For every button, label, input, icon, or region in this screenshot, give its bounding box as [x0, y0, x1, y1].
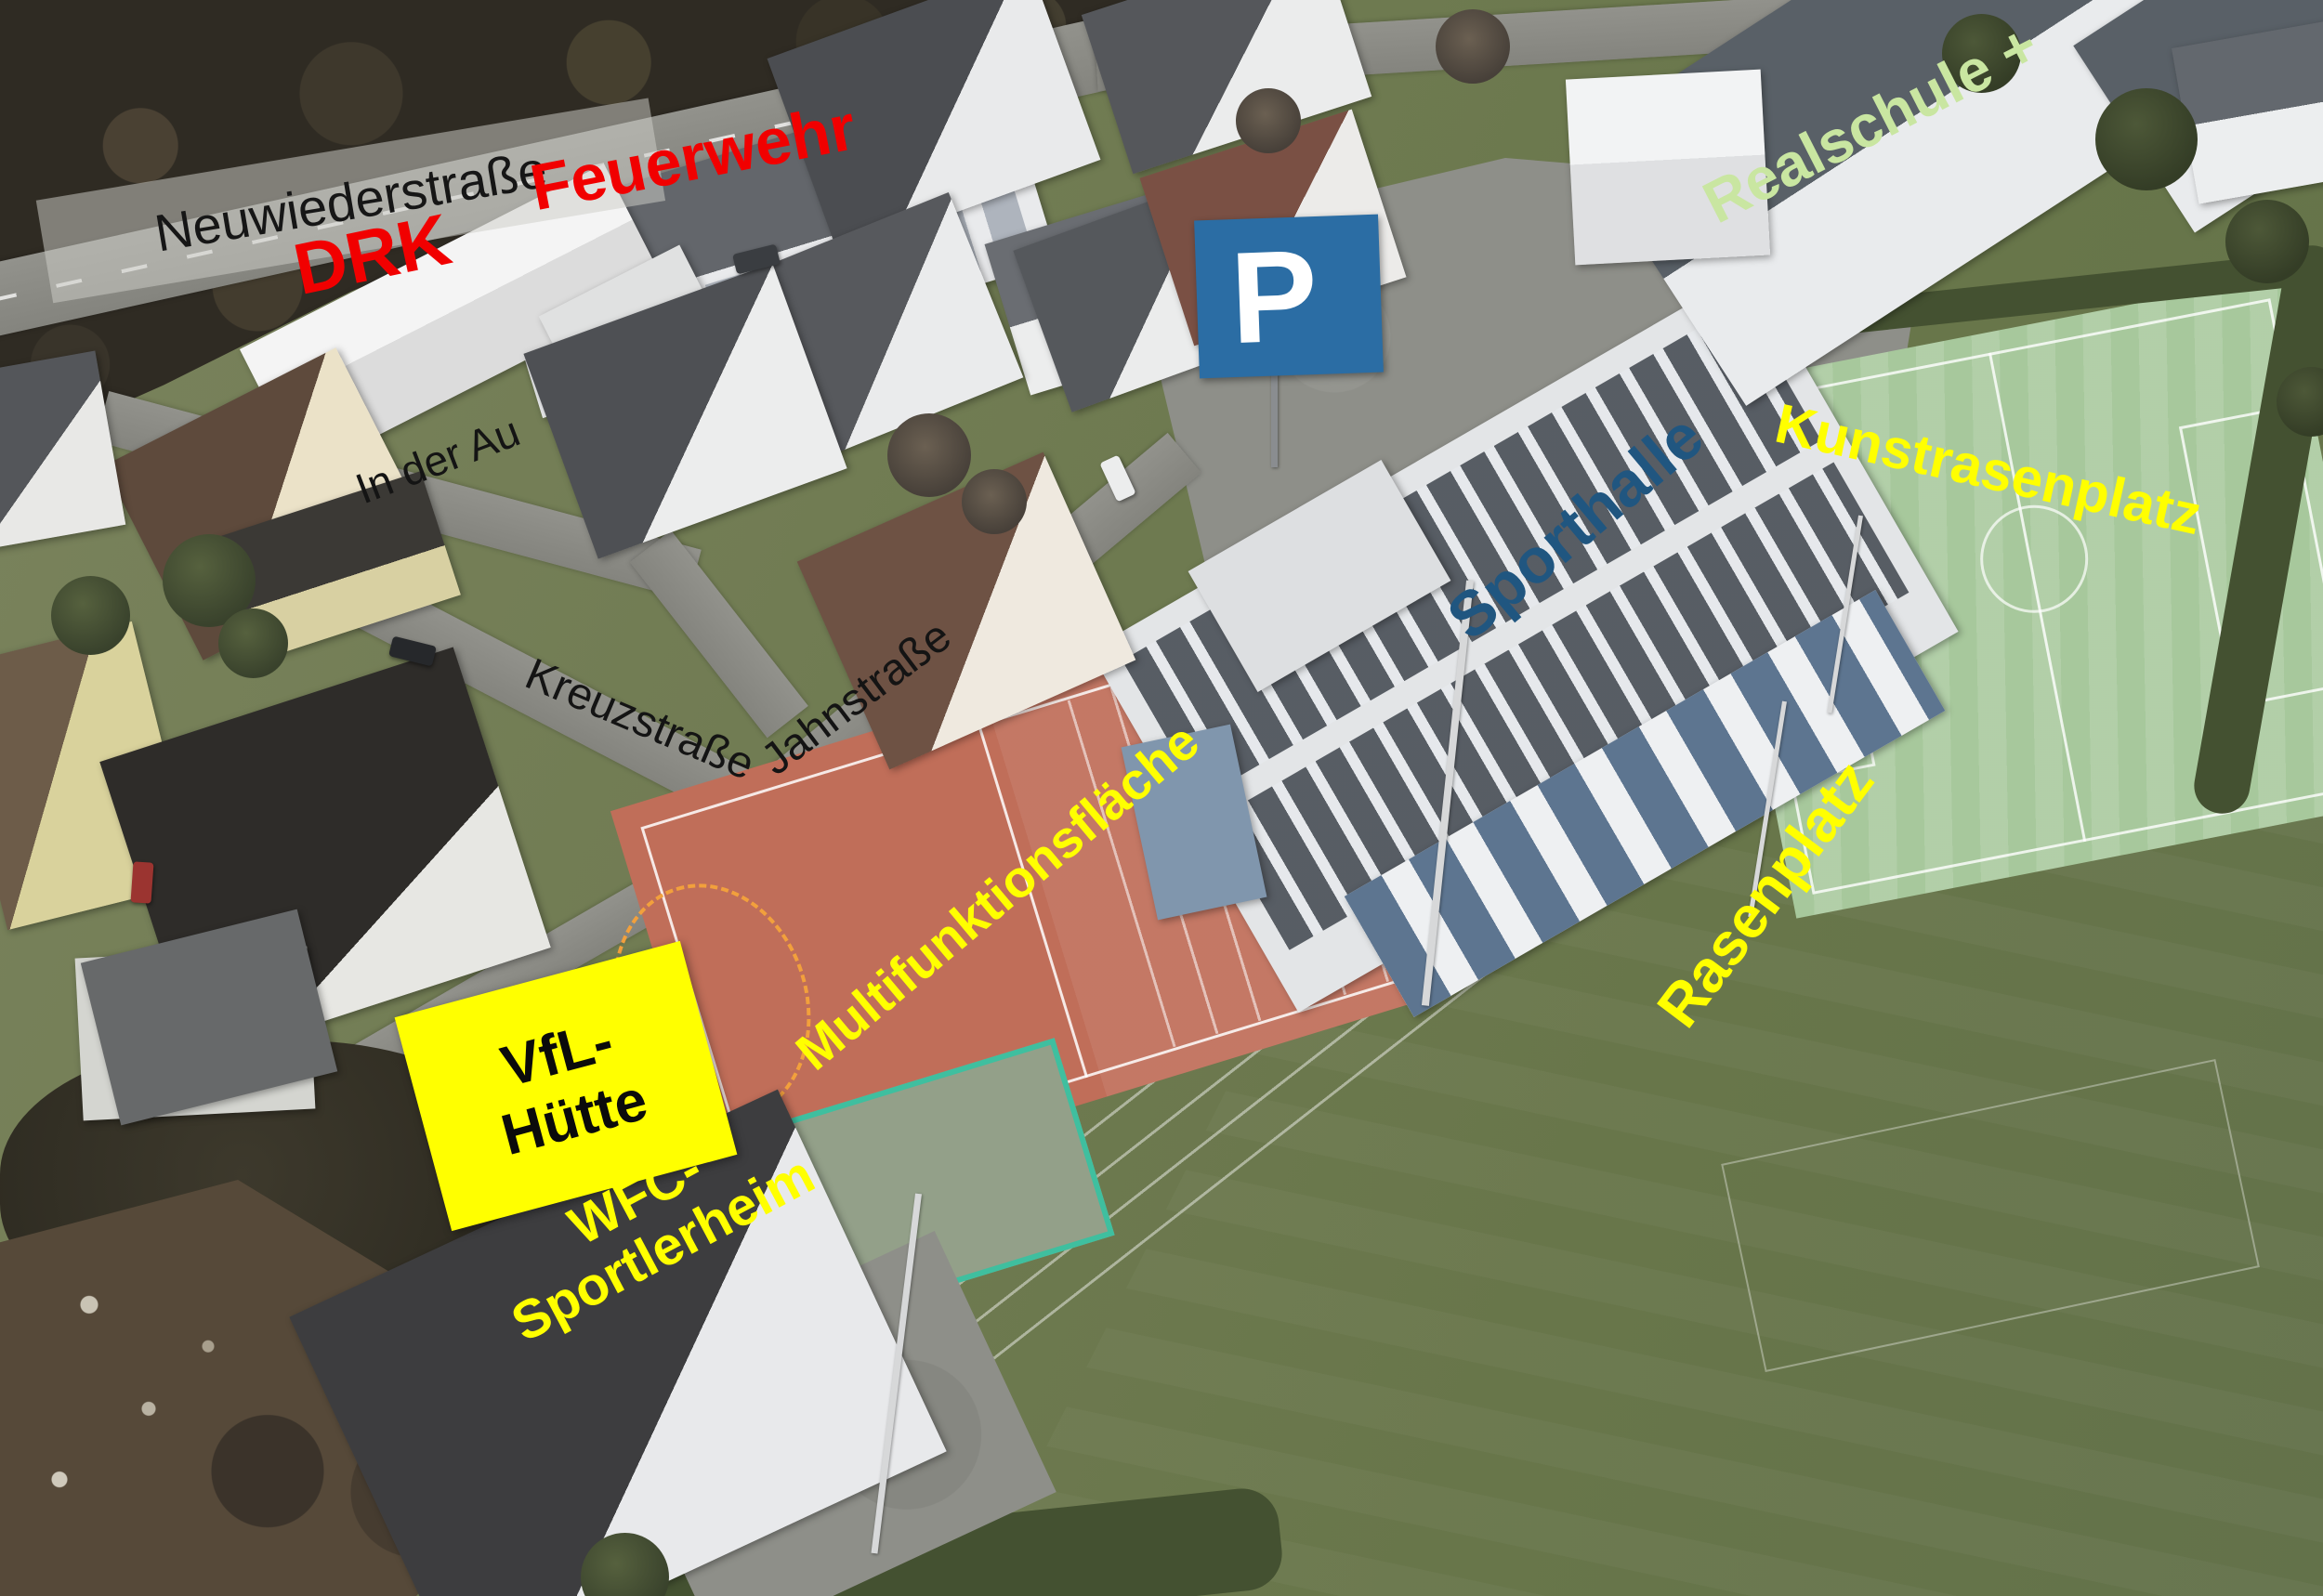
parking-sign-letter: P — [1228, 219, 1350, 373]
car-red — [130, 861, 153, 903]
bare-tree — [1436, 9, 1510, 84]
parking-sign-pole — [1271, 370, 1278, 467]
bare-tree — [962, 469, 1027, 534]
aerial-site-map: Neuwiederstraße DRK Feuerwehr Realschule… — [0, 0, 2323, 1596]
tree — [2225, 200, 2309, 283]
tree — [51, 576, 130, 655]
tree — [218, 608, 288, 678]
parking-sign: P — [1194, 215, 1384, 379]
bare-tree — [1236, 88, 1301, 153]
bare-tree — [887, 413, 971, 497]
tree — [2095, 88, 2198, 190]
